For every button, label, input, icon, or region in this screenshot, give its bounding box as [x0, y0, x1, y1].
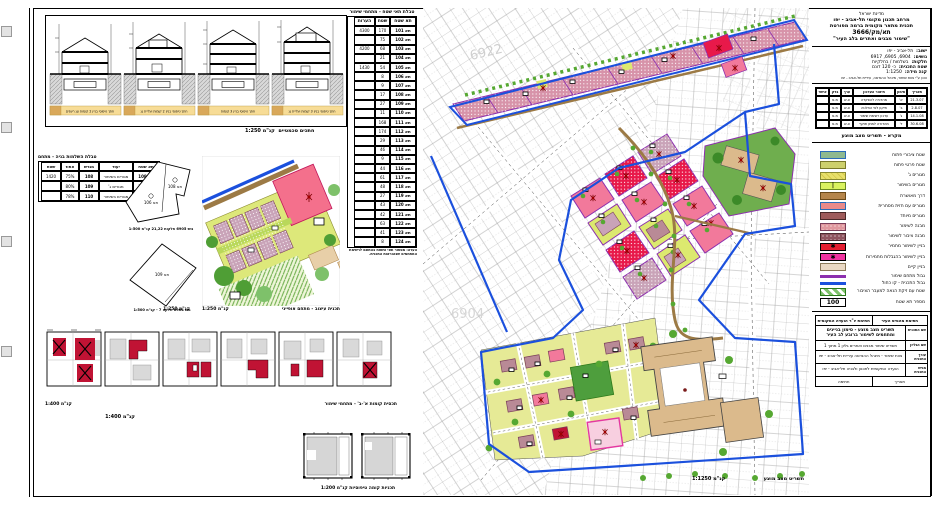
table-row: 21.3.07א'מהדורה להפקדהצ.שמ.פ [816, 96, 927, 104]
legend-label: בניין קיים [846, 265, 927, 270]
table-row: תא 12043 [348, 201, 416, 210]
legend-swatch: | [820, 182, 846, 190]
table-row: תא 10927 [348, 100, 416, 109]
table-row: תא 12142 [348, 210, 416, 219]
title-column: מדינת ישראל מרחב תכנון מקומי תל-אביב - י… [812, 8, 932, 496]
area-table-body: תא 1011704300 תא 10275 תא 103684200 תא 1… [348, 26, 416, 247]
legend-label: שטח פרטי פתוח [846, 163, 927, 168]
section-caption: חתך טיפוסי בניין 2 קומות וגג רעפים [66, 109, 114, 113]
table-row: תא 11011 [348, 109, 416, 118]
legend-label: מבנה ציבור לשימור [846, 234, 927, 239]
legend-item: דרך מאושרת [816, 192, 927, 200]
approval-row: שם התכנית תשריט מצב מוצע - סימון בניינים… [816, 326, 927, 341]
approval-row: מגיש התכנית הועדה המקומית לתכנון ולבניה … [816, 364, 927, 377]
approval-row: עורך התכנית צוות שימור - מינהל ההנדסה עי… [816, 351, 927, 364]
legend-item: מגורים ג' [816, 172, 927, 180]
plan-name: "שימור מבנים ואתרים בלב העיר" [812, 36, 931, 42]
approval-block: חתימת מהנדס העירחתימת יו"ר הועדה המקומית… [815, 315, 928, 387]
area-table-header: תא שטחשטחהערות [348, 17, 416, 26]
table-row: תא 11761 [348, 173, 416, 182]
legend-swatch [820, 263, 846, 271]
legend-swatch [820, 288, 846, 296]
floorplans-drawing [300, 430, 416, 482]
table-row: תא 11446 [348, 146, 416, 155]
legend-label: בניין לשימור בהגבלות מחמירות [846, 255, 927, 260]
legend-swatch [820, 192, 846, 200]
table-row: תא 112174 [348, 127, 416, 136]
legend-title: מקרא - תשריט מצב מוצע [812, 133, 931, 139]
legend-swatch [820, 275, 846, 278]
plan-sheet: חתך טיפוסי בניין 2 קומות וגג רעפים חתך ט… [0, 0, 935, 505]
table-row: תא 12263 [348, 219, 416, 228]
section-caption: חתך טיפוסי בניין 3 קומות [221, 109, 255, 113]
coverage-caption: תכסית קומות א'-ב' - מתחמי שימורקנ"מ 1:40… [45, 402, 397, 407]
legend-swatch [820, 202, 846, 210]
table-row: תא 11848 [348, 182, 416, 191]
section-caption: חתך טיפוסי בניין 2 קומות ועליית גג [141, 109, 188, 113]
legend-item: גבול התכנית - קו כחול [816, 281, 927, 286]
legend-item: גבול מתחם שימור [816, 274, 927, 279]
legend-label: דרך מאושרת [846, 194, 927, 199]
parcel-diagrams-drawing: תא 106 תא 108 גוש 6905 חלקות 21,22 קנ"מ … [118, 150, 204, 312]
floorplans-panel: תכניות קומה טיפוסיות קנ"מ 1:200 [300, 430, 416, 494]
legend-label: שטח עם זיקת הנאה למעבר הציבור [846, 289, 927, 294]
legend-swatch [820, 212, 846, 220]
sections-caption: חתכים סכמטיים קנ"מ 1:250 [245, 128, 345, 134]
parcel-label: תא 108 [168, 184, 183, 189]
parcel-label: תא 109 [155, 272, 170, 277]
table-row: 2.8.07ב'תיקון לפי החלטהצ.שמ.פ [816, 104, 927, 112]
parcel-label: תא 106 [144, 200, 159, 205]
table-row: 30.6.08ד'מהדורה למתן תוקףצ.שמ.פ [816, 120, 927, 128]
legend-item: בניין לשימור מחמיר ✱ [816, 243, 927, 251]
legend-swatch [820, 161, 846, 169]
approval-rows: שם התכנית תשריט מצב מוצע - סימון בניינים… [816, 326, 927, 377]
legend-swatch [820, 172, 846, 180]
area-table: טבלת תאי שטח - מתחמי שימור תא שטחשטחהערו… [347, 10, 417, 256]
table-row: תא 111168 [348, 118, 416, 127]
legend-label: מגורים עם חזית מסחרית [846, 204, 927, 209]
table-row: תא 11329 [348, 136, 416, 145]
legend-swatch [820, 151, 846, 159]
legend-label: מגורים מיוחד [846, 214, 927, 219]
legend-swatch [820, 223, 846, 231]
legend-swatch: 100 [820, 298, 846, 307]
approval-footer: תאריךחתימה [816, 377, 927, 386]
legend-label: גבול התכנית - קו כחול [846, 281, 927, 286]
info-row: קנה מידה: 1:1250 [816, 70, 927, 75]
table-row: תא 11644 [348, 164, 416, 173]
coverage-panels [45, 328, 397, 400]
legend-swatch [820, 233, 846, 241]
table-row: תא 1011704300 [348, 26, 416, 35]
legend-item: מגורים עם חזית מסחרית [816, 202, 927, 210]
coverage-panels-drawing [45, 328, 397, 400]
legend-swatch: ✱ [820, 243, 846, 251]
map-caption: תשריט מצב מוצעקנ"מ 1:1250 [692, 476, 804, 482]
legend-item: מבנה ציבור לשימור [816, 233, 927, 241]
legend-label: גבול מתחם שימור [846, 274, 927, 279]
legend-item: מגורים מיוחד [816, 212, 927, 220]
table-row: תא 10421 [348, 54, 416, 63]
approval-row: שם הגליון תשריט שימור מבנים ואתרים גליון… [816, 341, 927, 351]
building-sections-drawing: חתך טיפוסי בניין 2 קומות וגג רעפים חתך ט… [46, 16, 344, 120]
approval-header: חתימת מהנדס העירחתימת יו"ר הועדה המקומית [816, 316, 927, 326]
legend-swatch [820, 282, 846, 285]
table-row: תא 1068 [348, 72, 416, 81]
coverage-scale: קנ"מ 1:400 [45, 414, 135, 420]
legend-label: בניין לשימור מחמיר [846, 244, 927, 249]
legend-label: מגורים בשימור [846, 183, 927, 188]
legend-item: מבנה לשימור [816, 223, 927, 231]
legend-item: בניין לשימור בהגבלות מחמירות ✱ [816, 253, 927, 261]
table-row: תא 11927 [348, 192, 416, 201]
binder-mark [1, 346, 12, 357]
parcel-diagrams: תא 106 תא 108 גוש 6905 חלקות 21,22 קנ"מ … [118, 150, 204, 312]
table-row: תא 10275 [348, 35, 416, 44]
frame-line [29, 8, 30, 497]
detail-plan-scale-left: קנ"מ 1:250 [130, 307, 190, 312]
floorplans-caption: תכניות קומה טיפוסיות קנ"מ 1:200 [300, 486, 416, 491]
area-table-footnote: הערה: מספור תאי השטח בהתאם לרשימת המתחמי… [347, 249, 417, 257]
zoning-map-drawing: 6922 6904 [422, 8, 810, 495]
legend-item: מספר תא שטח 100 [816, 298, 927, 307]
legend-label: מבנה לשימור [846, 224, 927, 229]
table-row: תא 1079 [348, 81, 416, 90]
revisions-body: 21.3.07א'מהדורה להפקדהצ.שמ.פ 2.8.07ב'תיק… [816, 96, 927, 128]
area-table-title: טבלת תאי שטח - מתחמי שימור [347, 10, 417, 15]
zoning-map: 6922 6904 [422, 8, 810, 495]
sections-panel: חתך טיפוסי בניין 2 קומות וגג רעפים חתך ט… [45, 15, 347, 127]
block-number: 6904 [451, 307, 484, 322]
table-row: תא 105541430 [348, 63, 416, 72]
legend-swatch: ✱ [820, 253, 846, 261]
legend-item: שטח ציבורי פתוח [816, 151, 927, 159]
legend-label: מגורים ג' [846, 173, 927, 178]
table-row: תא 103684200 [348, 45, 416, 54]
section-caption: חתך טיפוסי בניין 3 קומות ועליית גג [289, 109, 336, 113]
revisions-header: תאריךסימוןתיאור העדכוןערךבדקאישר [816, 88, 927, 96]
title-block: מדינת ישראל מרחב תכנון מקומי תל-אביב - י… [812, 8, 931, 42]
legend-item: שטח עם זיקת הנאה למעבר הציבור [816, 288, 927, 296]
info-block: ישוב: תל-אביב - יפו גושים: 6904, 6905, 6… [812, 47, 931, 77]
parcel-caption: גוש 6905 חלקות 21,22 קנ"מ 1:500 [129, 227, 194, 231]
binder-mark [1, 122, 12, 133]
legend-item: שטח פרטי פתוח [816, 161, 927, 169]
detail-plan-drawing [202, 156, 340, 306]
legend-item: מגורים בשימור | [816, 182, 927, 190]
legend: שטח ציבורי פתוח שטח פרטי פתוח מגורים ג' … [812, 143, 931, 307]
legend-label: מספר תא שטח [846, 300, 927, 305]
detail-plan-caption: תכנית עיצוב - מתחם אופייניקנ"מ 1:250 [202, 307, 340, 312]
table-row: תא 1248 [348, 237, 416, 246]
binder-mark [1, 26, 12, 37]
detail-plan [202, 156, 340, 306]
table-row: 14.1.08ג'עדכון רשימת שימורצ.שמ.פ [816, 112, 927, 120]
table-row: תא 10817 [348, 90, 416, 99]
table-row: תא 1159 [348, 155, 416, 164]
binder-mark [1, 236, 12, 247]
plan-number: תא/מק/3666 [812, 29, 931, 36]
legend-label: שטח ציבורי פתוח [846, 153, 927, 158]
revisions-table: תאריךסימוןתיאור העדכוןערךבדקאישר 21.3.07… [815, 87, 928, 129]
legend-item: בניין קיים [816, 263, 927, 271]
table-row: תא 12341 [348, 228, 416, 237]
